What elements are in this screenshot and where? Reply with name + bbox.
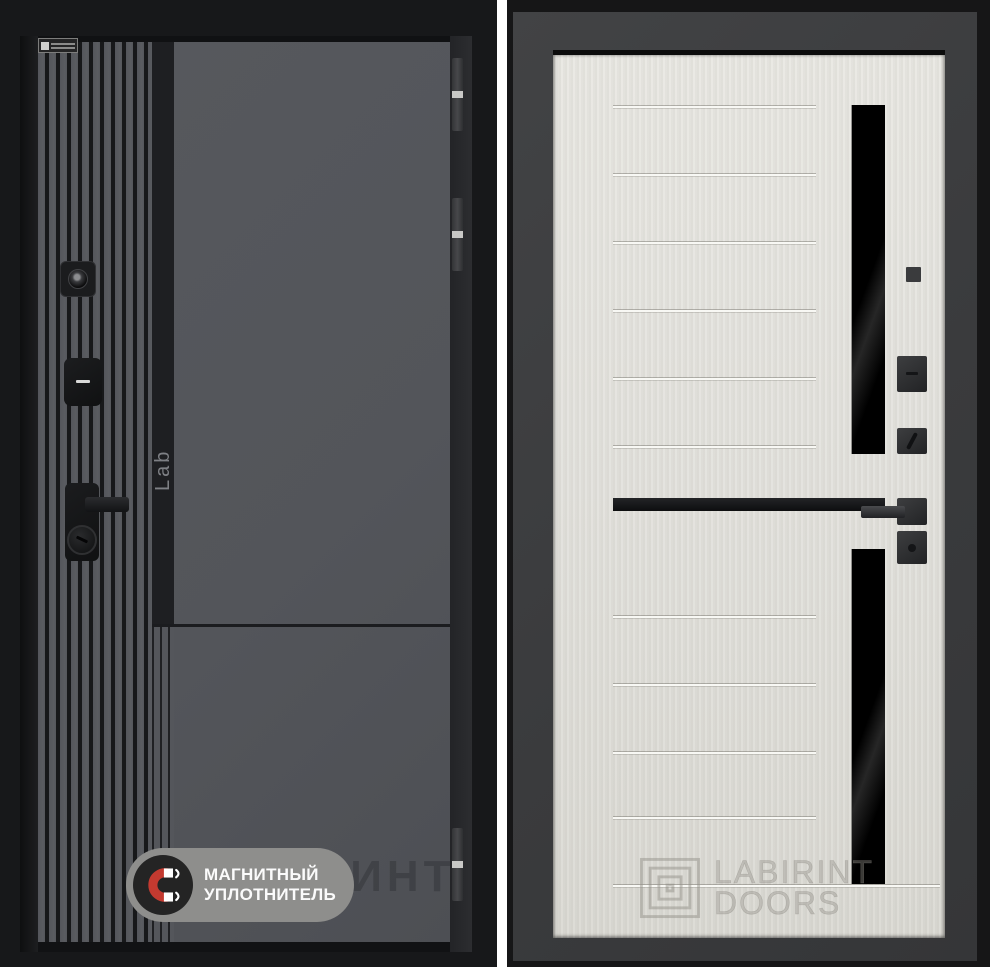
groove-line: [613, 241, 816, 245]
groove-line: [613, 683, 816, 687]
groove-line: [613, 615, 816, 619]
labyrinth-logo-icon: [639, 857, 701, 919]
magnet-icon-circle: [133, 855, 193, 915]
doorbell-button[interactable]: [64, 358, 102, 406]
leaf-left-edge: [20, 36, 38, 952]
groove-line: [613, 173, 816, 177]
seal-badge-line1: МАГНИТНЫЙ: [204, 865, 336, 885]
groove-line: [613, 105, 816, 109]
flat-graphite-panel: [154, 42, 450, 942]
watermark-line2: DOORS: [714, 888, 874, 919]
black-glass-stripe-horizontal: [613, 498, 885, 511]
keyhole-slot-icon: [76, 536, 88, 544]
black-glass-insert-upper: [852, 105, 885, 454]
groove-line: [613, 377, 816, 381]
lock-cylinder[interactable]: [67, 525, 97, 555]
thumb-turn-knob[interactable]: [897, 428, 927, 454]
small-square-fitting: [906, 267, 921, 282]
cylinder-escutcheon[interactable]: [897, 531, 927, 564]
cylinder-dot-icon: [908, 544, 916, 552]
labirint-plate-logo: [38, 38, 78, 53]
black-accent-strip: Lab: [152, 42, 174, 624]
seal-badge-text: МАГНИТНЫЙ УПЛОТНИТЕЛЬ: [204, 865, 336, 905]
leaf-bottom-edge: [20, 942, 472, 952]
seal-badge-line2: УПЛОТНИТЕЛЬ: [204, 885, 336, 905]
thumb-turn-lever-icon: [906, 432, 918, 450]
groove-line: [613, 309, 816, 313]
leaf-top-edge: [20, 36, 472, 42]
hinge-pin: [452, 231, 463, 238]
door-interior-leaf: LABIRINT DOORS: [553, 50, 945, 938]
magnetic-seal-badge: МАГНИТНЫЙ УПЛОТНИТЕЛЬ: [126, 848, 354, 922]
hinge-top: [452, 58, 463, 131]
leaf-hinge-edge: [450, 36, 472, 952]
watermark-line1: LABIRINT: [714, 857, 874, 888]
labirint-doors-watermark: LABIRINT DOORS: [639, 857, 874, 920]
deadbolt-escutcheon: [897, 356, 927, 392]
black-glass-insert-lower: [852, 549, 885, 884]
product-image-two-door-sides: Lab: [0, 0, 990, 967]
peephole: [60, 261, 96, 297]
hinge-pin: [452, 91, 463, 98]
hinge-middle: [452, 198, 463, 271]
plate-logo-icon: [41, 42, 49, 50]
plate-text-lines: [51, 42, 75, 49]
magnet-icon: [143, 865, 183, 905]
groove-line: [613, 816, 816, 820]
peephole-lens-icon: [68, 269, 88, 289]
wood-grain-texture: [553, 55, 945, 938]
groove-line: [613, 445, 816, 449]
groove-line: [613, 751, 816, 755]
door-handle-lever[interactable]: [85, 497, 129, 512]
deadbolt-slot-icon: [906, 372, 918, 375]
door-exterior-photo[interactable]: Lab: [0, 0, 497, 967]
door-interior-photo[interactable]: LABIRINT DOORS: [507, 0, 990, 967]
doorbell-dash-icon: [76, 380, 90, 383]
door-handle-lever-interior[interactable]: [861, 506, 905, 518]
watermark-text: LABIRINT DOORS: [714, 857, 874, 920]
lab-side-logo: Lab: [152, 410, 174, 530]
door-exterior-leaf: Lab: [20, 36, 472, 952]
horizontal-groove: [152, 624, 450, 627]
